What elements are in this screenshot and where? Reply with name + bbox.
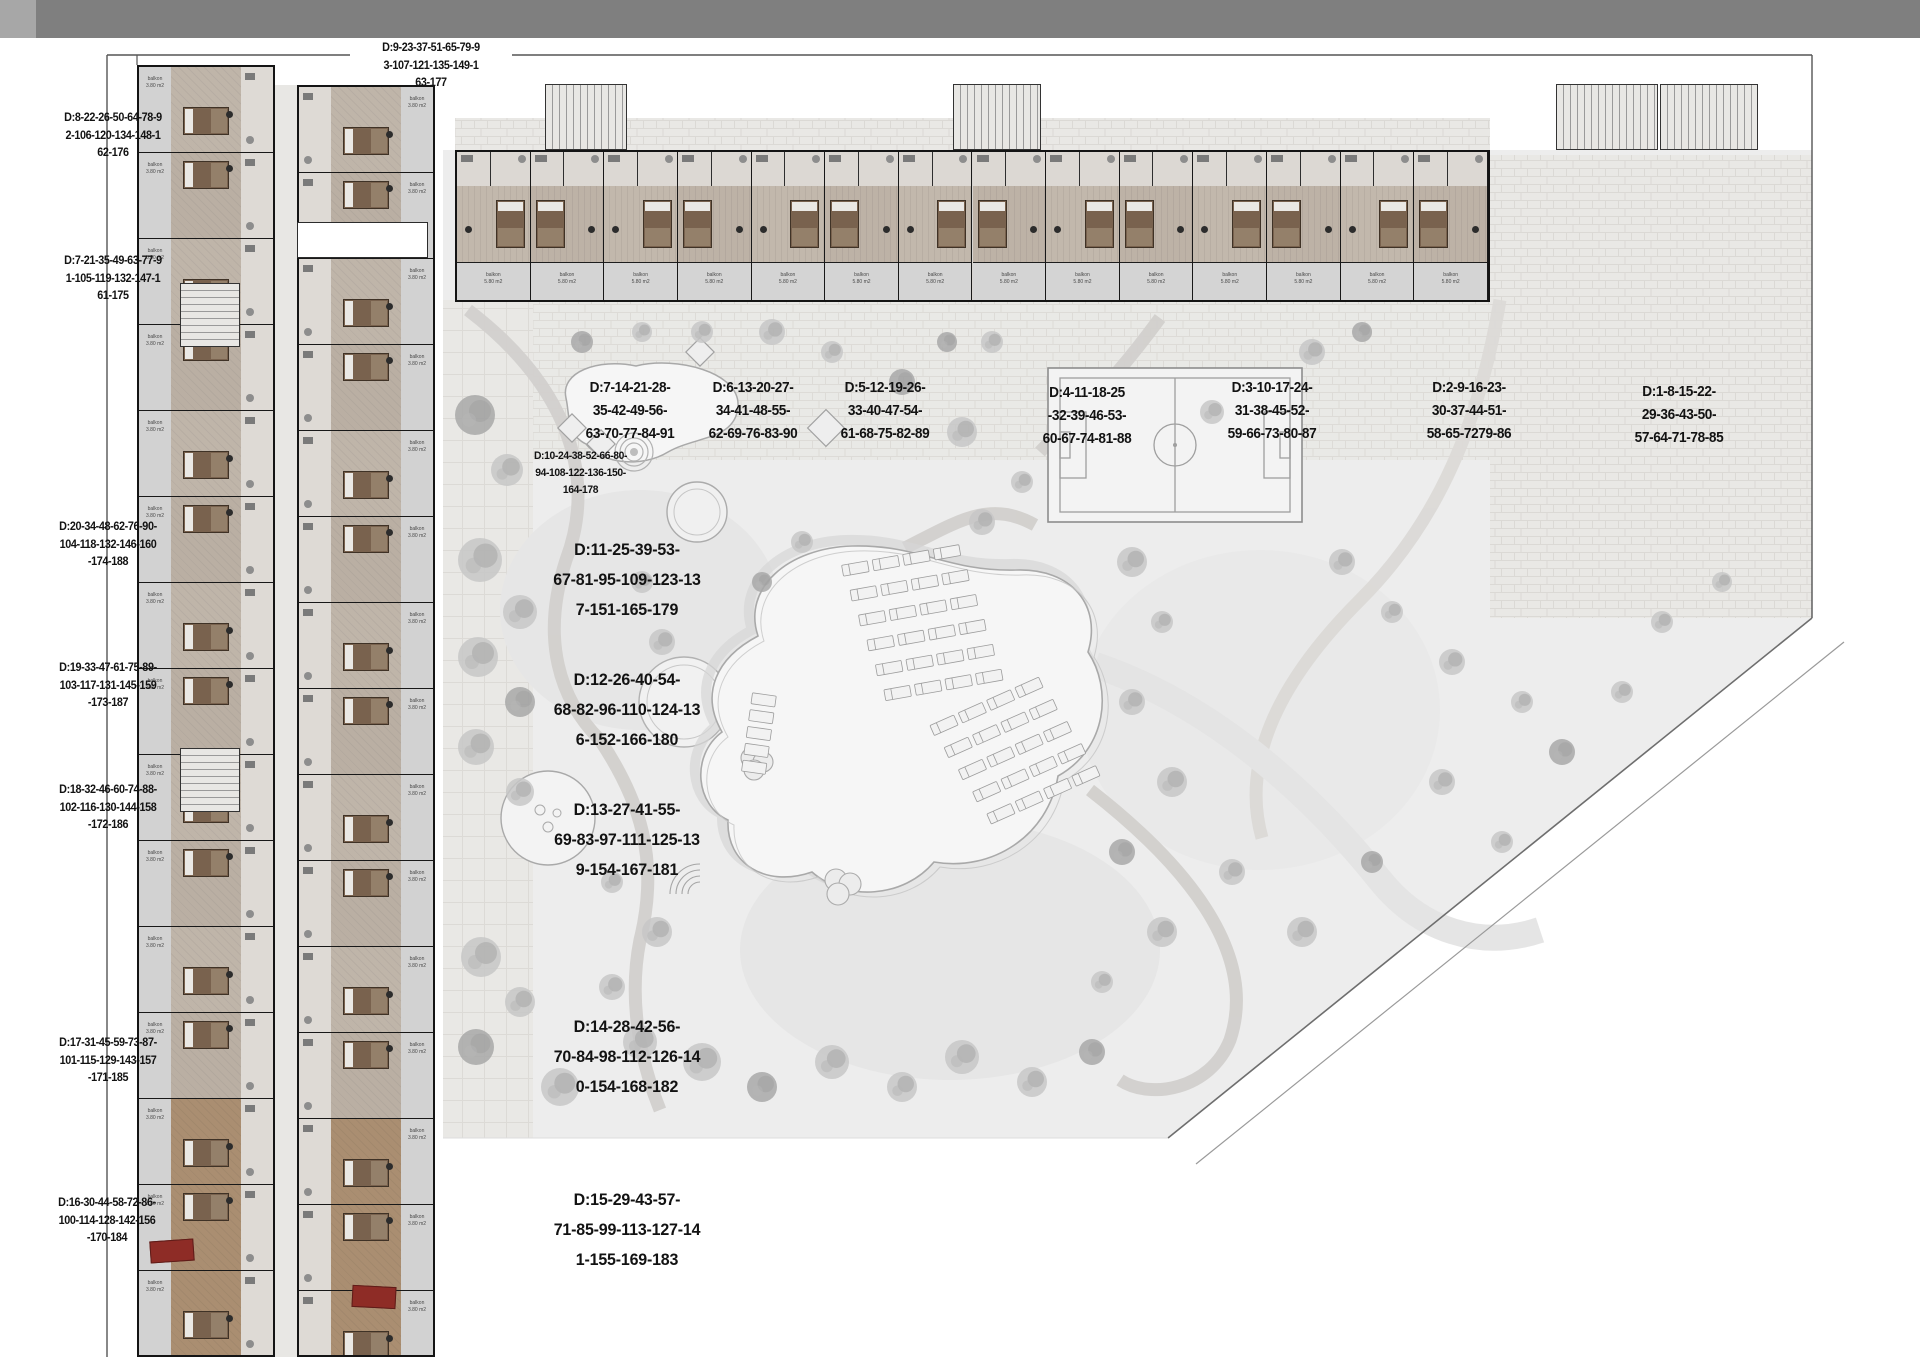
unit-list-label-row-5: D:3-10-17-24- 31-38-45-52- 59-66-73-80-8… — [1192, 377, 1352, 446]
site-plan-page: balkon5.80 m2balkon5.80 m2balkon5.80 m2b… — [0, 0, 1920, 1357]
side-table — [736, 226, 743, 233]
apartment-unit: balkon3.80 m2 — [139, 1099, 273, 1185]
unit-list-label-left-6: D:17-31-45-59-73-87- 101-115-129-143-157… — [42, 1035, 174, 1088]
bedroom-zone — [678, 186, 751, 262]
label-line: 1-155-169-183 — [533, 1245, 721, 1275]
tree — [1329, 549, 1355, 575]
label-line: D:12-26-40-54- — [533, 665, 721, 695]
blanket — [371, 871, 387, 895]
pillow — [939, 202, 964, 211]
side-table — [907, 226, 914, 233]
room-label: balkon — [604, 272, 677, 278]
pillow — [345, 1161, 353, 1185]
label-line: 7-151-165-179 — [533, 595, 721, 625]
label-line: 30-37-44-51- — [1389, 400, 1549, 423]
room-label: balkon — [401, 1300, 433, 1306]
unit-list-label-mid-2: D:12-26-40-54- 68-82-96-110-124-13 6-152… — [533, 665, 721, 755]
tree — [1381, 601, 1403, 623]
room-label: balkon — [139, 334, 171, 340]
wc-icon — [304, 1274, 312, 1282]
wc-icon — [304, 930, 312, 938]
room-label: balkon — [139, 76, 171, 82]
room-label: 3.80 m2 — [401, 1135, 433, 1141]
wc-icon — [246, 308, 254, 316]
label-line: 31-38-45-52- — [1192, 400, 1352, 423]
balcony: balkon3.80 m2 — [139, 411, 172, 496]
sink-icon — [303, 1039, 313, 1046]
balcony: balkon3.80 m2 — [400, 1033, 433, 1118]
wc-icon — [246, 738, 254, 746]
side-table — [386, 991, 393, 998]
blanket — [371, 183, 387, 207]
tree — [506, 778, 534, 806]
side-table — [612, 226, 619, 233]
blanket — [1127, 228, 1152, 246]
bed — [183, 505, 229, 533]
side-table — [226, 509, 233, 516]
pillow — [185, 109, 193, 133]
tree — [747, 1072, 777, 1102]
room-label: 5.80 m2 — [678, 279, 751, 285]
apartment-unit: balkon3.80 m2 — [299, 1205, 433, 1291]
apartment-unit: balkon3.80 m2 — [299, 603, 433, 689]
apartment-unit: balkon5.80 m2 — [1341, 152, 1415, 300]
bedroom-zone — [899, 186, 972, 262]
bedroom-zone — [171, 497, 241, 582]
tree — [1151, 611, 1173, 633]
bed — [343, 1213, 389, 1241]
tree — [1299, 339, 1325, 365]
sink-icon — [1124, 155, 1136, 162]
side-table — [465, 226, 472, 233]
label-line: -32-39-46-53- — [1007, 405, 1167, 428]
tree — [1091, 971, 1113, 993]
sink-icon — [1345, 155, 1357, 162]
bedroom-zone — [171, 1013, 241, 1098]
blanket — [1087, 228, 1112, 246]
balcony: balkon3.80 m2 — [400, 947, 433, 1032]
pillow — [498, 202, 523, 211]
tree — [458, 538, 502, 582]
sink-icon — [245, 589, 255, 596]
room-label: balkon — [139, 850, 171, 856]
room-label: 3.80 m2 — [139, 943, 171, 949]
pillow — [345, 989, 353, 1013]
tree — [1157, 767, 1187, 797]
balcony: balkon3.80 m2 — [400, 431, 433, 516]
balcony: balkon5.80 m2 — [825, 262, 898, 301]
wc-icon — [246, 996, 254, 1004]
label-line: D:4-11-18-25 — [1007, 382, 1167, 405]
bathroom-zone — [604, 152, 677, 187]
blanket — [371, 817, 387, 841]
pillow — [345, 699, 353, 723]
room-label: balkon — [401, 698, 433, 704]
wc-icon — [518, 155, 526, 163]
pillow — [345, 355, 353, 379]
bathroom-zone — [299, 947, 332, 1032]
room-label: 5.80 m2 — [531, 279, 604, 285]
label-line: 94-108-122-136-150- — [522, 465, 640, 482]
bedroom-zone — [1193, 186, 1266, 262]
bathroom-zone — [299, 775, 332, 860]
sink-icon — [245, 331, 255, 338]
bathroom-zone — [531, 152, 604, 187]
label-line: 59-66-73-80-87 — [1192, 423, 1352, 446]
bedroom-zone — [331, 775, 401, 860]
stair-core — [180, 748, 240, 812]
top-apartment-block: balkon5.80 m2balkon5.80 m2balkon5.80 m2b… — [455, 150, 1490, 302]
tree — [458, 637, 498, 677]
pillow — [345, 645, 353, 669]
wc-icon — [1401, 155, 1409, 163]
bedroom-zone — [171, 669, 241, 754]
label-line: 164-178 — [522, 482, 640, 499]
pillow — [345, 301, 353, 325]
tree — [887, 1072, 917, 1102]
room-label: balkon — [139, 1280, 171, 1286]
tree — [642, 917, 672, 947]
unit-list-label-row-6: D:2-9-16-23- 30-37-44-51- 58-65-7279-86 — [1389, 377, 1549, 446]
balcony: balkon3.80 m2 — [400, 517, 433, 602]
wc-icon — [246, 1082, 254, 1090]
sink-icon — [303, 1211, 313, 1218]
side-table — [760, 226, 767, 233]
bathroom-zone — [1193, 152, 1266, 187]
balcony: balkon5.80 m2 — [1120, 262, 1193, 301]
label-line: 9-154-167-181 — [533, 855, 721, 885]
bed — [343, 815, 389, 843]
sink-icon — [682, 155, 694, 162]
balcony: balkon3.80 m2 — [139, 1099, 172, 1184]
sink-icon — [535, 155, 547, 162]
bed — [343, 127, 389, 155]
label-line: 100-114-128-142-156 — [41, 1213, 173, 1231]
tree — [1712, 572, 1732, 592]
label-line: -173-187 — [42, 695, 174, 713]
blanket — [371, 301, 387, 325]
blanket — [211, 1141, 227, 1165]
side-table — [1472, 226, 1479, 233]
label-line: 63-177 — [361, 75, 502, 93]
pillow — [185, 453, 193, 477]
wc-icon — [304, 1188, 312, 1196]
tree — [1011, 471, 1033, 493]
bedroom-zone — [1120, 186, 1193, 262]
pillow — [345, 817, 353, 841]
tree — [461, 937, 501, 977]
room-label: 3.80 m2 — [401, 963, 433, 969]
tree — [1491, 831, 1513, 853]
bathroom-zone — [299, 345, 332, 430]
apartment-unit: balkon5.80 m2 — [1120, 152, 1194, 300]
unit-list-label-row-4: D:4-11-18-25 -32-39-46-53- 60-67-74-81-8… — [1007, 382, 1167, 451]
unit-list-label-mid-3: D:13-27-41-55- 69-83-97-111-125-13 9-154… — [533, 795, 721, 885]
blanket — [211, 679, 227, 703]
room-label: balkon — [139, 592, 171, 598]
balcony: balkon3.80 m2 — [400, 259, 433, 344]
label-line: 33-40-47-54- — [805, 400, 965, 423]
sink-icon — [245, 761, 255, 768]
side-table — [226, 1315, 233, 1322]
blanket — [211, 507, 227, 531]
label-line: D:18-32-46-60-74-88- — [42, 782, 174, 800]
sink-icon — [756, 155, 768, 162]
room-label: balkon — [401, 1042, 433, 1048]
apartment-unit: balkon5.80 m2 — [457, 152, 531, 300]
bathroom-zone — [299, 1119, 332, 1204]
label-line: D:13-27-41-55- — [533, 795, 721, 825]
label-line: D:15-29-43-57- — [533, 1185, 721, 1215]
room-label: balkon — [401, 1214, 433, 1220]
room-label: balkon — [401, 440, 433, 446]
bedroom-zone — [171, 1271, 241, 1356]
side-table — [386, 701, 393, 708]
bathroom-zone — [240, 927, 273, 1012]
tree — [1361, 851, 1383, 873]
tree — [691, 321, 713, 343]
apartment-unit: balkon3.80 m2 — [299, 87, 433, 173]
bed — [343, 1041, 389, 1069]
balcony: balkon3.80 m2 — [400, 87, 433, 172]
balcony: balkon3.80 m2 — [139, 325, 172, 410]
sink-icon — [245, 1191, 255, 1198]
tree — [1109, 839, 1135, 865]
label-line: 101-115-129-143-157 — [42, 1053, 174, 1071]
blanket — [1421, 228, 1446, 246]
side-table — [386, 1163, 393, 1170]
bed — [343, 697, 389, 725]
tree — [1287, 917, 1317, 947]
room-label: 3.80 m2 — [401, 361, 433, 367]
bathroom-zone — [299, 431, 332, 516]
side-table — [386, 1335, 393, 1342]
tree — [505, 687, 535, 717]
label-line: D:20-34-48-62-76-90- — [42, 519, 174, 537]
sink-icon — [303, 1297, 313, 1304]
balcony: balkon3.80 m2 — [400, 861, 433, 946]
stair-core — [545, 84, 627, 150]
tree — [571, 331, 593, 353]
bedroom-zone — [331, 603, 401, 688]
apartment-unit: balkon3.80 m2 — [299, 1119, 433, 1205]
blanket — [371, 129, 387, 153]
bed — [343, 1159, 389, 1187]
wc-icon — [304, 758, 312, 766]
side-table — [226, 971, 233, 978]
tree — [1439, 649, 1465, 675]
bathroom-zone — [240, 411, 273, 496]
pillow — [832, 202, 857, 211]
tree — [458, 1029, 494, 1065]
room-label: balkon — [1414, 272, 1487, 278]
balcony: balkon5.80 m2 — [1193, 262, 1266, 301]
room-label: balkon — [1267, 272, 1340, 278]
unit-list-label-left-4: D:19-33-47-61-75-89- 103-117-131-145-159… — [42, 660, 174, 713]
balcony: balkon3.80 m2 — [139, 583, 172, 668]
room-label: balkon — [678, 272, 751, 278]
bedroom-zone — [331, 345, 401, 430]
pillow — [185, 1195, 193, 1219]
pillow — [345, 129, 353, 153]
side-table — [1054, 226, 1061, 233]
tree — [1079, 1039, 1105, 1065]
tree — [1511, 691, 1533, 713]
apartment-unit: balkon5.80 m2 — [1267, 152, 1341, 300]
apartment-unit: balkon5.80 m2 — [678, 152, 752, 300]
wc-icon — [812, 155, 820, 163]
apartment-unit: balkon3.80 m2 — [139, 927, 273, 1013]
bed — [1232, 200, 1261, 248]
bathroom-zone — [1120, 152, 1193, 187]
room-label: balkon — [401, 612, 433, 618]
apartment-unit: balkon3.80 m2 — [299, 947, 433, 1033]
blanket — [1381, 228, 1406, 246]
sink-icon — [303, 609, 313, 616]
label-line: 0-154-168-182 — [533, 1072, 721, 1102]
room-label: balkon — [1046, 272, 1119, 278]
blanket — [1234, 228, 1259, 246]
room-label: balkon — [1341, 272, 1414, 278]
bed — [343, 987, 389, 1015]
side-table — [226, 165, 233, 172]
bed — [183, 677, 229, 705]
pillow — [1127, 202, 1152, 211]
label-line: 103-117-131-145-159 — [42, 678, 174, 696]
blanket — [211, 1313, 227, 1337]
bedroom-zone — [1414, 186, 1487, 262]
sink-icon — [245, 417, 255, 424]
pillow — [345, 1043, 353, 1067]
bathroom-zone — [457, 152, 530, 187]
blanket — [685, 228, 710, 246]
apartment-unit: balkon5.80 m2 — [825, 152, 899, 300]
tree — [981, 331, 1003, 353]
pillow — [185, 679, 193, 703]
pillow — [185, 625, 193, 649]
apartment-unit: balkon3.80 m2 — [139, 1271, 273, 1357]
stair-core — [1556, 84, 1658, 150]
room-label: 3.80 m2 — [139, 857, 171, 863]
sink-icon — [303, 523, 313, 530]
room-label: 5.80 m2 — [899, 279, 972, 285]
sink-icon — [303, 695, 313, 702]
tree — [821, 341, 843, 363]
tree — [599, 974, 625, 1000]
bedroom-zone — [1341, 186, 1414, 262]
balcony: balkon5.80 m2 — [1414, 262, 1487, 301]
bathroom-zone — [752, 152, 825, 187]
apartment-unit: balkon5.80 m2 — [752, 152, 826, 300]
room-label: balkon — [139, 936, 171, 942]
blanket — [371, 527, 387, 551]
room-label: 5.80 m2 — [1193, 279, 1266, 285]
apartment-unit: balkon3.80 m2 — [139, 583, 273, 669]
blanket — [832, 228, 857, 246]
bedroom-zone — [171, 927, 241, 1012]
bedroom-zone — [825, 186, 898, 262]
balcony: balkon3.80 m2 — [139, 927, 172, 1012]
bathroom-zone — [973, 152, 1046, 187]
sink-icon — [303, 437, 313, 444]
room-label: balkon — [139, 764, 171, 770]
room-label: 3.80 m2 — [139, 427, 171, 433]
balcony: balkon3.80 m2 — [400, 1119, 433, 1204]
bed — [1419, 200, 1448, 248]
side-table — [1201, 226, 1208, 233]
sink-icon — [245, 1019, 255, 1026]
pillow — [1087, 202, 1112, 211]
sink-icon — [245, 847, 255, 854]
bed — [343, 181, 389, 209]
bathroom-zone — [240, 67, 273, 152]
side-table — [226, 627, 233, 634]
bathroom-zone — [240, 841, 273, 926]
room-label: balkon — [899, 272, 972, 278]
pillow — [185, 163, 193, 187]
pillow — [345, 1333, 353, 1357]
bedroom-zone — [331, 947, 401, 1032]
wc-icon — [246, 824, 254, 832]
side-table — [386, 873, 393, 880]
sink-icon — [245, 503, 255, 510]
room-label: 3.80 m2 — [139, 1115, 171, 1121]
tree — [1147, 917, 1177, 947]
left-block-corridor — [275, 85, 297, 1357]
sink-icon — [977, 155, 989, 162]
bed — [183, 1139, 229, 1167]
room-label: balkon — [139, 1022, 171, 1028]
bathroom-zone — [825, 152, 898, 187]
tree — [1651, 611, 1673, 633]
apartment-unit: balkon5.80 m2 — [531, 152, 605, 300]
room-label: 3.80 m2 — [139, 341, 171, 347]
side-table — [226, 853, 233, 860]
blanket — [538, 228, 563, 246]
bedroom-zone — [331, 517, 401, 602]
room-label: balkon — [531, 272, 604, 278]
sink-icon — [303, 179, 313, 186]
pillow — [185, 1023, 193, 1047]
apartment-unit: balkon5.80 m2 — [1414, 152, 1488, 300]
sink-icon — [245, 1277, 255, 1284]
sink-icon — [608, 155, 620, 162]
blanket — [211, 1195, 227, 1219]
pillow — [345, 871, 353, 895]
side-table — [386, 819, 393, 826]
tree — [503, 595, 537, 629]
balcony: balkon5.80 m2 — [1046, 262, 1119, 301]
blanket — [371, 355, 387, 379]
side-table — [386, 131, 393, 138]
balcony: balkon5.80 m2 — [678, 262, 751, 301]
bed — [183, 1311, 229, 1339]
side-table — [386, 475, 393, 482]
label-line: D:11-25-39-53- — [533, 535, 721, 565]
apartment-unit: balkon3.80 m2 — [299, 259, 433, 345]
tree — [649, 629, 675, 655]
tree — [937, 332, 957, 352]
apartment-unit: balkon3.80 m2 — [299, 517, 433, 603]
stair-core — [180, 283, 240, 347]
wc-icon — [246, 1168, 254, 1176]
apartment-unit: balkon3.80 m2 — [139, 841, 273, 927]
tree — [815, 1045, 849, 1079]
unit-list-label-row-7: D:1-8-15-22- 29-36-43-50- 57-64-71-78-85 — [1599, 381, 1759, 450]
bedroom-zone — [171, 411, 241, 496]
label-line: D:19-33-47-61-75-89- — [42, 660, 174, 678]
side-table — [1030, 226, 1037, 233]
